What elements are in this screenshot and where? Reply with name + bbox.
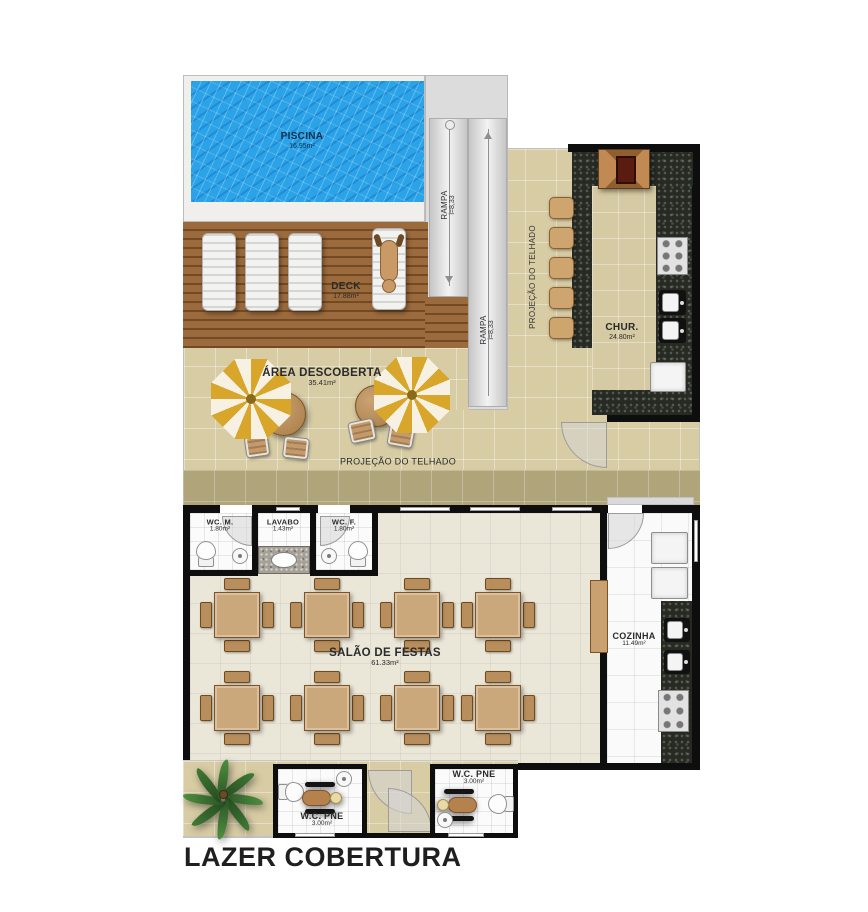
chur-floor xyxy=(592,186,656,390)
party-table xyxy=(304,685,350,731)
door-opening xyxy=(220,505,252,513)
wall xyxy=(316,570,378,576)
room-label-lavabo: LAVABO 1.43m² xyxy=(267,519,299,534)
dining-chair xyxy=(290,602,302,628)
sink-icon xyxy=(664,650,690,674)
dining-chair xyxy=(224,733,250,745)
sunbather-head xyxy=(382,279,396,293)
dining-chair xyxy=(290,695,302,721)
room-label-wc-m: WC. M. 1.80m² xyxy=(207,519,234,534)
palm-tree-icon xyxy=(182,758,264,840)
lounge-chair xyxy=(202,233,236,311)
deck-floor-extension xyxy=(425,297,468,348)
wall xyxy=(600,513,607,580)
dining-chair xyxy=(404,578,430,590)
room-label-piscina: PISCINA 16.95m² xyxy=(281,132,324,150)
kitchen-ledge xyxy=(607,497,694,505)
dining-chair xyxy=(262,695,274,721)
washbasin-icon xyxy=(232,548,248,564)
dining-chair xyxy=(224,671,250,683)
wall xyxy=(607,415,700,422)
toilet-icon xyxy=(196,541,216,567)
room-label-salao: SALÃO DE FESTAS 61.33m² xyxy=(329,647,441,667)
stool xyxy=(549,317,574,339)
lounge-chair xyxy=(288,233,322,311)
wall xyxy=(430,764,435,838)
pass-through-counter xyxy=(590,580,608,653)
dining-chair xyxy=(200,602,212,628)
sunbather-body xyxy=(380,240,398,282)
dining-chair xyxy=(314,578,340,590)
cooktop-icon xyxy=(658,690,689,732)
stool xyxy=(549,287,574,309)
dining-chair xyxy=(352,695,364,721)
dining-chair xyxy=(523,602,535,628)
window xyxy=(400,507,450,511)
room-label-chur: CHUR. 24.80m² xyxy=(605,323,638,341)
chur-counter-bottom xyxy=(592,390,692,415)
dining-chair xyxy=(380,602,392,628)
party-table xyxy=(475,685,521,731)
party-table xyxy=(394,685,440,731)
dining-chair xyxy=(380,695,392,721)
table-group xyxy=(290,671,364,745)
dining-chair xyxy=(404,733,430,745)
window xyxy=(295,833,335,837)
dining-chair xyxy=(262,602,274,628)
garden-chair xyxy=(283,437,309,459)
wall xyxy=(372,513,378,576)
dining-chair xyxy=(442,695,454,721)
stool xyxy=(549,197,574,219)
dining-chair xyxy=(461,695,473,721)
room-label-wc-pne-left: W.C. PNE 3.00m² xyxy=(301,812,344,828)
dining-chair xyxy=(224,578,250,590)
table-group xyxy=(461,671,535,745)
lounge-chair xyxy=(245,233,279,311)
door-opening xyxy=(608,505,642,513)
sink-icon xyxy=(664,618,690,642)
ramp-2-label: RAMPA i=8,33 xyxy=(479,315,495,344)
sink-icon xyxy=(659,290,686,315)
washbasin-icon xyxy=(321,548,337,564)
table-group xyxy=(461,578,535,652)
table-group xyxy=(380,578,454,652)
stool xyxy=(549,227,574,249)
window xyxy=(552,507,592,511)
dining-chair xyxy=(314,733,340,745)
stool xyxy=(549,257,574,279)
wall xyxy=(692,144,700,422)
window xyxy=(276,507,300,511)
room-label-deck: DECK 17.88m² xyxy=(331,282,361,300)
wall xyxy=(273,764,367,769)
window xyxy=(694,520,698,562)
party-table xyxy=(304,592,350,638)
ramp-1-label: RAMPA i=8,33 xyxy=(440,190,456,219)
table-group xyxy=(380,671,454,745)
cooktop-icon xyxy=(657,237,688,275)
wall xyxy=(190,570,252,576)
toilet-icon xyxy=(348,541,368,567)
room-label-wc-pne-right: W.C. PNE 3.00m² xyxy=(453,770,496,786)
dining-chair xyxy=(485,640,511,652)
table-group xyxy=(200,578,274,652)
room-label-cozinha: COZINHA 11.49m² xyxy=(612,632,655,648)
party-table xyxy=(214,685,260,731)
window xyxy=(448,833,484,837)
fridge-icon xyxy=(651,532,688,564)
party-table xyxy=(214,592,260,638)
door-opening xyxy=(318,505,350,513)
roof-projection-label-horizontal: PROJEÇÃO DO TELHADO xyxy=(340,457,456,466)
dining-chair xyxy=(352,602,364,628)
dining-chair xyxy=(224,640,250,652)
roof-projection-label-vertical: PROJEÇÃO DO TELHADO xyxy=(522,225,540,329)
party-table xyxy=(475,592,521,638)
ramp-2 xyxy=(468,118,507,407)
wall xyxy=(600,653,607,763)
wall xyxy=(183,505,190,768)
floor-plan-canvas: RAMPA i=8,33 RAMPA i=8,33 PISCINA 16.95m… xyxy=(0,0,868,912)
window xyxy=(470,507,520,511)
dining-chair xyxy=(485,671,511,683)
dining-chair xyxy=(485,733,511,745)
wall xyxy=(310,513,316,576)
dining-chair xyxy=(404,671,430,683)
chur-cabinet xyxy=(650,362,686,392)
grill-icon xyxy=(598,149,650,189)
ramp-direction-arrow xyxy=(488,129,489,396)
table-group xyxy=(290,578,364,652)
dining-chair xyxy=(442,602,454,628)
room-label-wc-f: WC. F. 1.80m² xyxy=(332,519,356,534)
toilet-icon xyxy=(488,794,514,814)
wall xyxy=(510,763,700,770)
wall xyxy=(362,764,367,838)
washbasin-icon xyxy=(437,812,453,828)
washbasin-icon xyxy=(271,552,297,568)
dining-chair xyxy=(485,578,511,590)
cabinet-icon xyxy=(651,567,688,599)
room-label-area-descoberta: ÁREA DESCOBERTA 35.41m² xyxy=(262,367,382,387)
table-group xyxy=(200,671,274,745)
dining-chair xyxy=(523,695,535,721)
dining-chair xyxy=(314,671,340,683)
dining-chair xyxy=(461,602,473,628)
dining-chair xyxy=(200,695,212,721)
wall xyxy=(367,833,430,838)
party-table xyxy=(394,592,440,638)
plan-title: LAZER COBERTURA xyxy=(184,842,462,873)
sink-icon xyxy=(659,318,686,343)
